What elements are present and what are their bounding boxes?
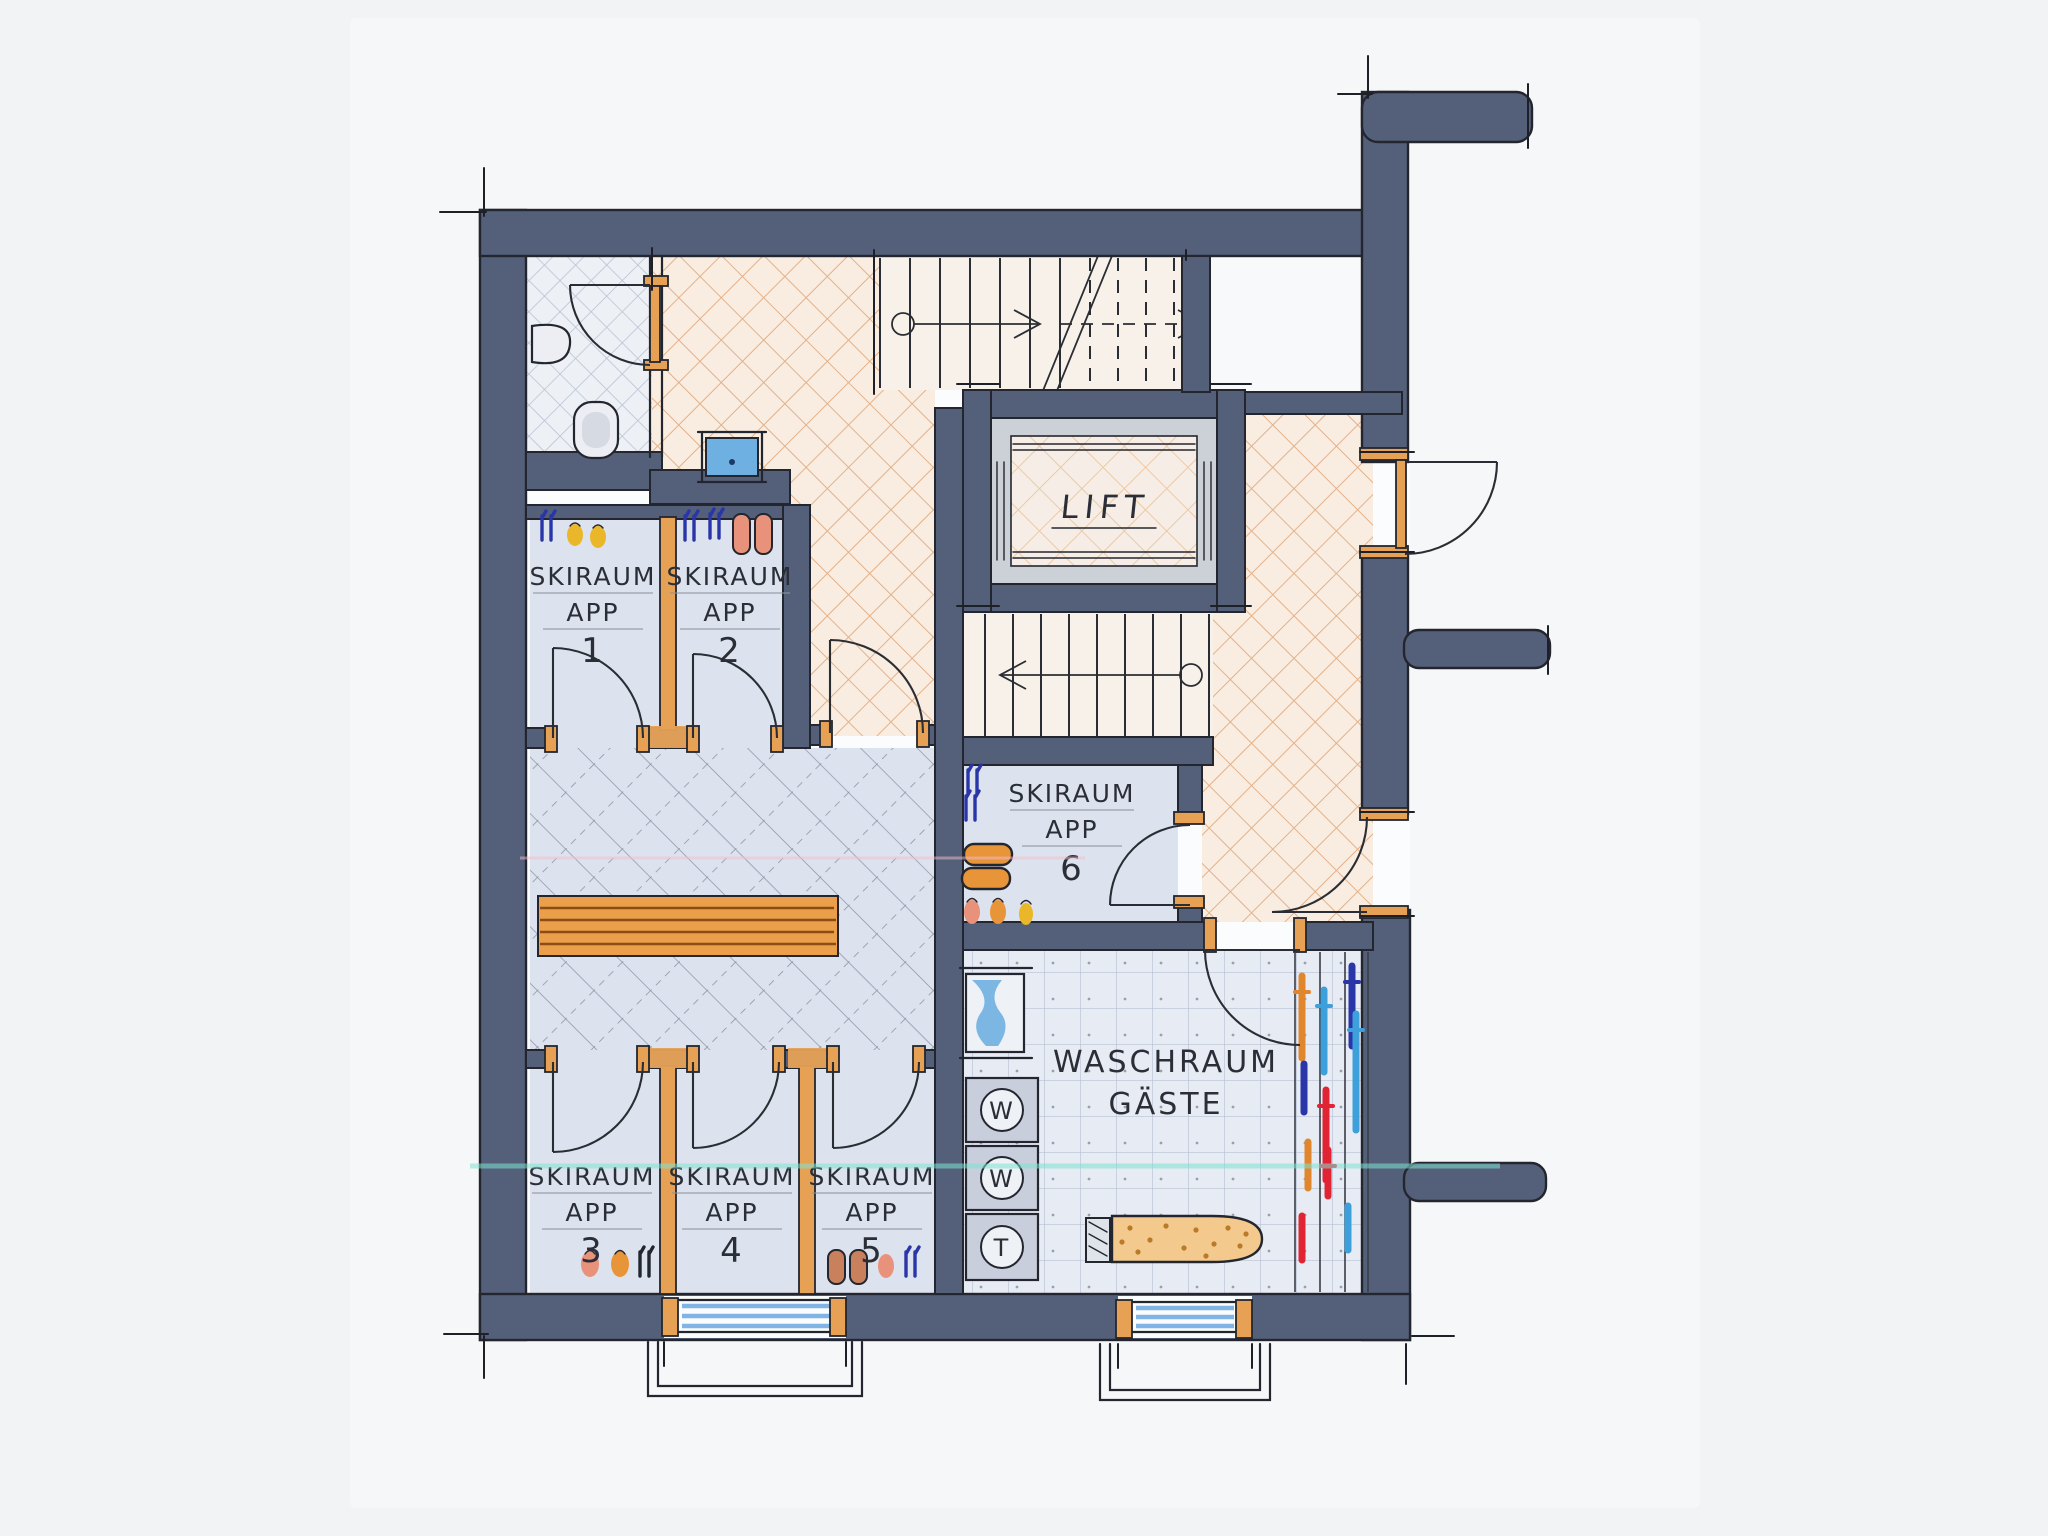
washing-machine-2: W	[966, 1146, 1038, 1210]
room-number: 1	[581, 631, 605, 671]
machine-letter: W	[989, 1097, 1015, 1125]
shoe-icon	[755, 514, 772, 554]
machine-letter: W	[989, 1165, 1015, 1193]
wall-seg	[1300, 922, 1373, 950]
boot-icon	[1019, 903, 1033, 925]
room-label-line: SKIRAUM	[1009, 779, 1136, 808]
wall-top	[480, 210, 1364, 256]
lift-wall-right	[1217, 390, 1245, 612]
washing-machine-1: W	[966, 1078, 1038, 1142]
wall-stairs-landing	[1182, 256, 1210, 392]
floor-plan-svg: LIFT W W T	[0, 0, 2048, 1536]
room-number: 5	[860, 1231, 884, 1271]
machine-letter: T	[993, 1234, 1011, 1262]
boot-icon	[990, 900, 1006, 924]
room-label-line: APP	[705, 1198, 758, 1227]
room-label-line: APP	[1045, 815, 1098, 844]
landing-floor	[1210, 256, 1373, 392]
room-label-line: APP	[566, 598, 619, 627]
lift-wall-left	[963, 390, 991, 612]
wall-right-mid	[1362, 556, 1408, 814]
partition-base	[648, 726, 692, 748]
lift-shaft: LIFT	[991, 418, 1217, 584]
partition-cap	[648, 1048, 690, 1068]
ironing-board-icon	[1086, 1216, 1262, 1262]
wall-central-vertical	[935, 408, 963, 1294]
boot-icon	[567, 524, 583, 546]
bench	[538, 896, 838, 956]
wc-sink-icon	[532, 325, 570, 363]
room-label-line: SKIRAUM	[667, 562, 794, 591]
boot-icon	[611, 1251, 629, 1277]
room-number: 6	[1060, 849, 1084, 889]
partition-skiraum-1-2	[660, 517, 676, 730]
boot-icon	[964, 900, 980, 924]
wall-laundry-top	[963, 922, 1210, 950]
wall-topright-stub	[1362, 92, 1532, 142]
wall-skiraum2-right	[783, 505, 810, 748]
washbasin-icon	[706, 438, 758, 476]
lift-label: LIFT	[1059, 488, 1152, 526]
shoe-icon	[733, 514, 750, 554]
scanned-floor-plan-page: LIFT W W T	[0, 0, 2048, 1536]
wall-right-stub	[1404, 630, 1550, 668]
ski-boot-icon	[964, 844, 1012, 865]
toilet-seat	[582, 412, 610, 448]
wall-skiraum6-top	[963, 737, 1213, 765]
shoe-icon	[828, 1250, 845, 1284]
wall-bottomright-stub	[1404, 1163, 1546, 1201]
wall-right-low	[1362, 910, 1410, 1340]
room-number: 4	[720, 1231, 744, 1271]
laundry-label-line: WASCHRAUM	[1053, 1045, 1279, 1080]
corridor-washbasin	[698, 432, 766, 482]
room-label-line: APP	[703, 598, 756, 627]
room-label-line: APP	[565, 1198, 618, 1227]
wc-door-panel	[650, 286, 660, 362]
lift-wall-top	[963, 390, 1245, 418]
wall-left	[480, 210, 526, 1340]
partition-cap	[788, 1048, 830, 1068]
laundry-label-line: GÄSTE	[1108, 1086, 1223, 1122]
ski-boot-icon	[962, 868, 1010, 889]
faucet-dot	[729, 459, 735, 465]
room-number: 2	[718, 631, 742, 671]
room-number: 3	[580, 1231, 604, 1271]
lift-wall-bottom	[963, 584, 1245, 612]
entry-door-panel	[1396, 460, 1406, 548]
room-label-line: APP	[845, 1198, 898, 1227]
dryer: T	[966, 1214, 1038, 1280]
wall-landing-hall	[1245, 392, 1402, 414]
room-label-line: SKIRAUM	[530, 562, 657, 591]
boot-icon	[590, 526, 606, 548]
wall-bottom	[480, 1294, 1410, 1340]
